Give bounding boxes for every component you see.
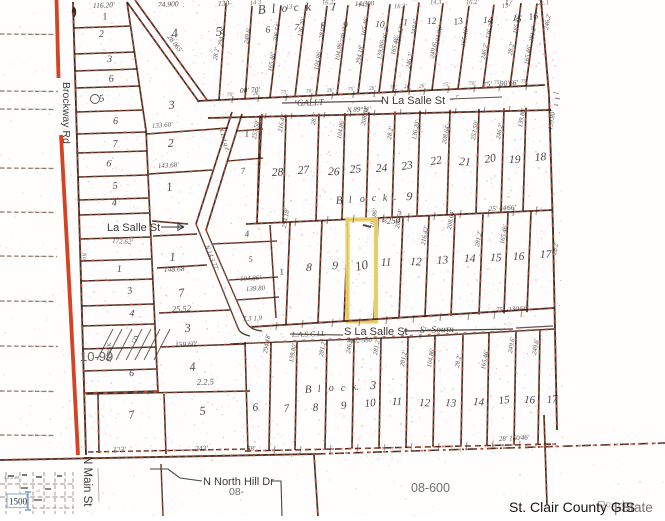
- svg-text:70': 70': [227, 92, 235, 99]
- svg-text:11: 11: [392, 396, 402, 408]
- svg-text:116.20': 116.20': [93, 0, 115, 10]
- svg-text:3: 3: [369, 378, 376, 392]
- svg-text:10: 10: [364, 397, 377, 410]
- svg-text:7.3 1.9: 7.3 1.9: [243, 314, 263, 323]
- svg-text:5,: 5,: [215, 23, 226, 39]
- svg-text:28: 28: [272, 166, 284, 179]
- svg-text:25.52: 25.52: [172, 303, 192, 314]
- svg-text:21: 21: [459, 156, 471, 169]
- svg-text:B: B: [335, 195, 343, 207]
- svg-text:13-: 13-: [285, 3, 294, 11]
- svg-text:139.80: 139.80: [246, 284, 266, 293]
- svg-text:6: 6: [113, 116, 118, 127]
- svg-text:74.900: 74.900: [158, 0, 179, 9]
- svg-text:13: 13: [436, 254, 449, 267]
- svg-text:13: 13: [453, 16, 464, 27]
- svg-text:26': 26': [404, 84, 412, 91]
- svg-text:3: 3: [183, 321, 191, 336]
- svg-text:N Main St: N Main St: [81, 456, 93, 507]
- svg-text:10: 10: [375, 20, 385, 30]
- svg-text:13: 13: [445, 397, 457, 410]
- svg-text:26': 26': [419, 83, 427, 90]
- svg-text:10-99: 10-99: [80, 349, 113, 364]
- svg-text:26': 26': [253, 91, 261, 98]
- svg-text:45 5 30: 45 5 30: [4, 476, 20, 481]
- svg-text:1: 1: [117, 264, 123, 275]
- svg-text:St. Clair County GIS: St. Clair County GIS: [509, 499, 635, 515]
- svg-text:2c.1: 2c.1: [538, 0, 549, 7]
- svg-text:75': 75': [348, 86, 356, 93]
- svg-text:15: 15: [512, 14, 523, 25]
- svg-text:11: 11: [381, 256, 392, 269]
- svg-text:13-: 13-: [501, 2, 510, 10]
- svg-text:14: 14: [464, 253, 476, 265]
- svg-text:k.: k.: [351, 382, 359, 393]
- svg-text:.: .: [394, 192, 397, 203]
- svg-text:90'66': 90'66': [500, 78, 519, 88]
- svg-text:243': 243': [195, 444, 209, 453]
- svg-text:2: 2: [167, 136, 174, 150]
- svg-text:75': 75': [494, 80, 502, 87]
- svg-text:14: 14: [473, 396, 485, 409]
- svg-text:75': 75': [443, 82, 451, 89]
- svg-text:148.68': 148.68': [164, 264, 187, 274]
- svg-text:9: 9: [406, 189, 413, 203]
- svg-text:143.68': 143.68': [158, 161, 180, 170]
- svg-text:25: 25: [349, 163, 362, 176]
- svg-text:6: 6: [129, 368, 134, 379]
- svg-text:75': 75': [521, 78, 529, 85]
- svg-text:159.60': 159.60': [175, 339, 198, 349]
- svg-text:N La Salle St: N La Salle St: [381, 95, 445, 107]
- svg-text:2.2.5: 2.2.5: [197, 376, 214, 387]
- svg-text:08-: 08-: [229, 486, 245, 498]
- svg-text:23: 23: [400, 159, 414, 173]
- svg-text:08-600: 08-600: [411, 481, 450, 495]
- svg-text:14: 14: [483, 16, 493, 26]
- svg-text:16: 16: [513, 251, 525, 263]
- svg-text:12: 12: [427, 17, 437, 27]
- svg-text:16: 16: [528, 12, 539, 23]
- svg-text:26: 26: [328, 166, 340, 178]
- svg-text:9: 9: [343, 21, 348, 31]
- svg-text:o: o: [328, 383, 334, 394]
- svg-text:24: 24: [376, 162, 388, 175]
- svg-text:14.3: 14.3: [358, 2, 370, 9]
- svg-text:26': 26': [327, 87, 335, 94]
- svg-text:3: 3: [167, 97, 175, 112]
- svg-text:25' 44⁄66': 25' 44⁄66': [489, 204, 517, 213]
- svg-text:16.2': 16.2': [394, 3, 407, 10]
- svg-text:17: 17: [546, 393, 558, 406]
- svg-text:4: 4: [111, 198, 117, 209]
- svg-text:8: 8: [306, 262, 312, 274]
- svg-text:18: 18: [534, 151, 547, 164]
- svg-text:o: o: [359, 194, 365, 205]
- svg-text:S La Salle St: S La Salle St: [344, 326, 408, 338]
- svg-text:9: 9: [341, 400, 347, 412]
- svg-text:70': 70': [390, 84, 398, 91]
- svg-text:12: 12: [419, 397, 431, 409]
- svg-text:-2 ˉˉ: -2 ˉˉ: [36, 489, 45, 494]
- svg-text:La Salle St: La Salle St: [107, 222, 160, 234]
- svg-text:16: 16: [524, 394, 536, 406]
- svg-text:70': 70': [469, 81, 477, 88]
- svg-text:123': 123': [113, 445, 127, 454]
- svg-text:Brockway Rd: Brockway Rd: [60, 82, 72, 144]
- svg-text:20: 20: [484, 152, 497, 166]
- svg-text:1500: 1500: [9, 497, 28, 507]
- svg-text:104.86’: 104.86’: [240, 274, 263, 283]
- svg-text:9: 9: [332, 260, 339, 272]
- svg-text:16.2': 16.2': [466, 0, 480, 6]
- svg-text:75': 75': [281, 89, 289, 96]
- svg-text:133.60': 133.60': [152, 121, 174, 130]
- svg-text:172.62': 172.62': [112, 237, 134, 246]
- svg-text:3: 3: [106, 54, 112, 65]
- svg-text:16.2': 16.2': [322, 0, 336, 6]
- svg-text:14.3: 14.3: [430, 0, 442, 6]
- svg-text:19: 19: [509, 154, 521, 166]
- svg-text:2: 2: [99, 29, 105, 40]
- svg-text:26': 26': [369, 85, 377, 92]
- svg-text:5: 5: [112, 181, 118, 192]
- svg-text:70': 70': [306, 88, 314, 95]
- svg-text:B: B: [304, 384, 312, 396]
- svg-text:17: 17: [540, 249, 553, 261]
- svg-text:15: 15: [490, 252, 502, 264]
- svg-text:12: 12: [410, 256, 422, 268]
- svg-text:15: 15: [498, 394, 511, 407]
